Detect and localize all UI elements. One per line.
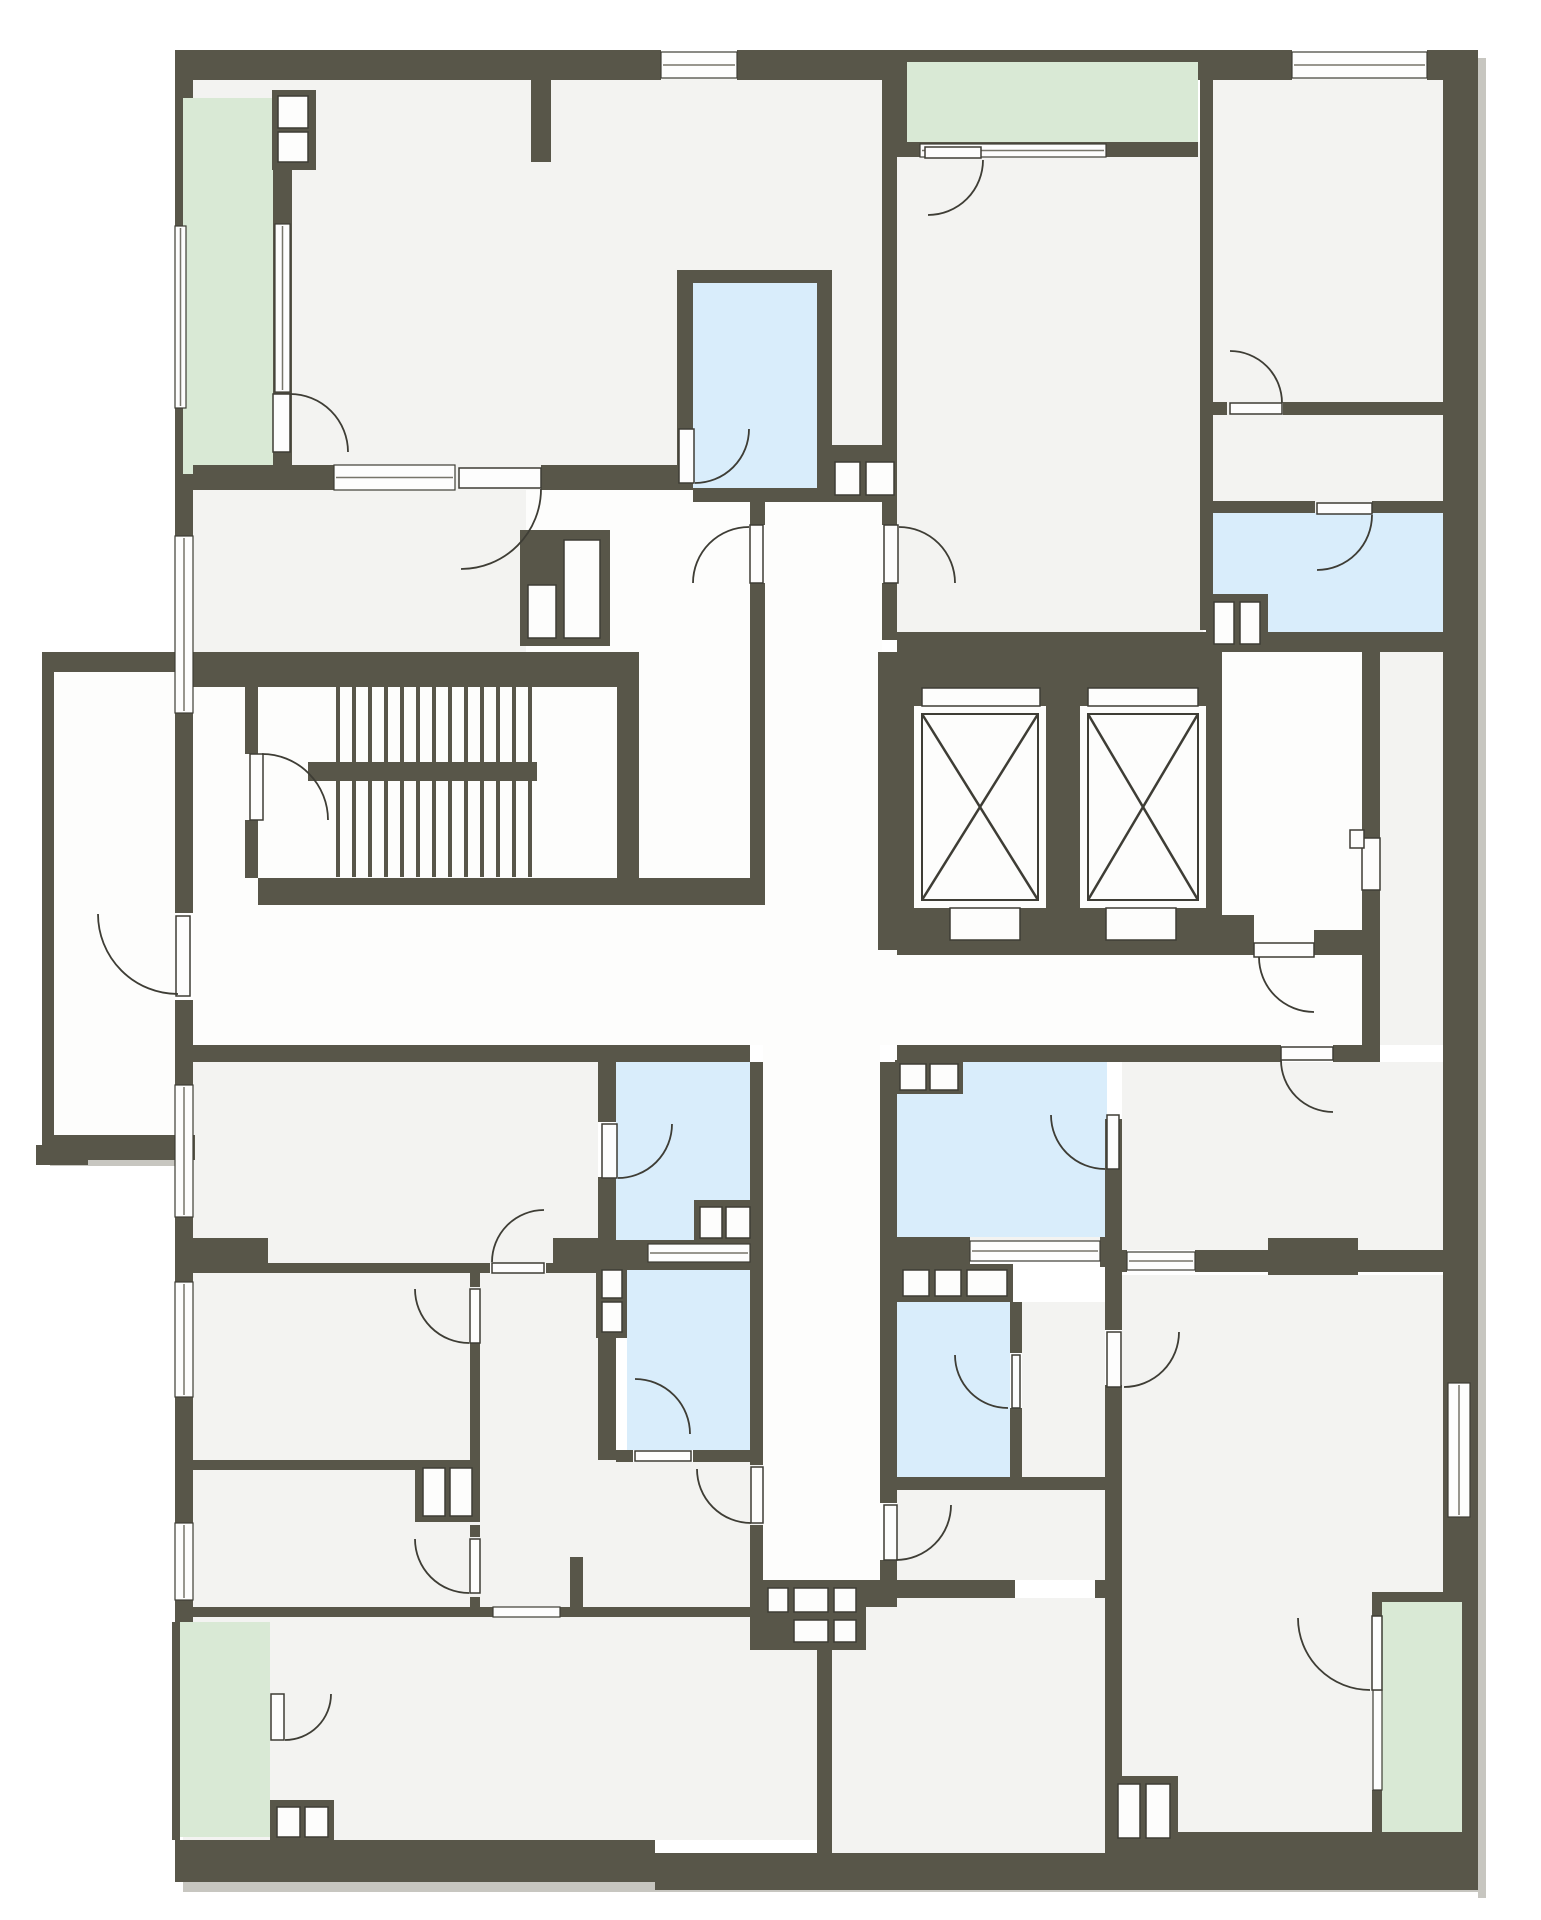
shaft-cell (768, 1588, 788, 1612)
outer-shadow (1478, 58, 1486, 1898)
door-bump-leaf (176, 916, 190, 996)
door-bath-l2-leaf (635, 1451, 691, 1461)
wall (42, 672, 54, 1140)
door-bath-l1-leaf (602, 1124, 617, 1178)
shaft-cell (835, 462, 860, 495)
elevator-door-bar (922, 688, 1040, 706)
elevator-door-notch (950, 908, 1020, 940)
wall (175, 1840, 655, 1882)
room-top-right-strip (1202, 415, 1443, 513)
balcony-bottom-right (1382, 1602, 1462, 1832)
room-top-right-corner (1213, 62, 1443, 415)
door-elevator-lobby-leaf (1254, 943, 1314, 957)
wall (546, 1263, 598, 1273)
wall (470, 1597, 480, 1607)
wall (470, 1343, 480, 1460)
door-balcony-br-leaf (1372, 1616, 1382, 1690)
corridor-vertical-bottom (763, 1045, 880, 1593)
wall (897, 632, 1443, 652)
room-mid-left-1 (193, 1062, 598, 1263)
window-balcony-br-side (1373, 1690, 1382, 1790)
door-tl-rooms-leaf (459, 468, 541, 488)
wall (1107, 1250, 1127, 1272)
shaft-cell (278, 96, 308, 128)
room-bottom-center-c (897, 1490, 1105, 1580)
wall (1213, 501, 1315, 513)
shaft-cell (423, 1468, 445, 1516)
shaft-cell (1350, 830, 1364, 848)
elevators-layer (878, 652, 1222, 950)
wall (1372, 501, 1443, 513)
wall (693, 1450, 750, 1462)
shaft-cell (935, 1270, 961, 1296)
wall (560, 1607, 763, 1617)
elevator-door-bar (1088, 688, 1198, 706)
wall (1010, 1408, 1022, 1477)
shaft-cell (528, 585, 556, 638)
door-tr-corner-leaf (1230, 403, 1282, 414)
wall (1213, 402, 1227, 415)
wall (1283, 402, 1443, 415)
wall (172, 1622, 180, 1840)
wall (897, 1045, 1281, 1062)
shaft-cell (866, 462, 894, 495)
door-balcony-tl-leaf (273, 394, 290, 452)
wall (470, 1525, 480, 1537)
shaft-cell (726, 1207, 750, 1238)
shaft-cell (277, 1807, 300, 1837)
wall (531, 80, 551, 162)
floor-plan-svg (0, 0, 1541, 1920)
wall (1010, 1302, 1022, 1353)
room-bottom-center-living (832, 1598, 1122, 1853)
shaft-cell (700, 1207, 722, 1238)
wall (737, 50, 905, 80)
wall (1462, 1602, 1478, 1840)
wall (193, 652, 639, 687)
wall (1443, 50, 1478, 1602)
wall (817, 1643, 832, 1853)
wall (541, 465, 693, 490)
shaft-cell (1146, 1784, 1170, 1838)
shaft-cell (1240, 602, 1260, 644)
door-hall-2-leaf (470, 1539, 480, 1593)
wall (36, 1145, 88, 1165)
wall (175, 1263, 490, 1273)
shaft-cell (903, 1270, 929, 1296)
door-bath-r2-leaf (1012, 1355, 1020, 1408)
floor-plan-page (0, 0, 1541, 1920)
door-hall-1-leaf (470, 1289, 480, 1343)
wall (245, 687, 258, 754)
elevator-lobby (1213, 652, 1362, 1045)
shaft-cell (564, 540, 600, 638)
wall (598, 1047, 616, 1122)
wall (897, 1580, 1015, 1598)
wall (1362, 640, 1380, 840)
door-balcony-bl-leaf (271, 1694, 284, 1740)
wall (1177, 1832, 1478, 1890)
wall (882, 583, 897, 640)
shaft-cell (834, 1588, 856, 1612)
door-br-inner-leaf (1107, 1332, 1121, 1387)
wall (1195, 1250, 1268, 1272)
wall (750, 583, 765, 905)
wall (570, 1557, 583, 1607)
wall (175, 50, 193, 98)
shaft-cell (930, 1064, 958, 1090)
wall (897, 1237, 970, 1267)
shaft-cell (1214, 602, 1234, 644)
corridor-vertical-top (765, 497, 882, 957)
shaft-cell (967, 1270, 1007, 1296)
shaft-cell (794, 1620, 828, 1642)
shaft-cell (305, 1807, 328, 1837)
door-corridor-top-right-leaf (884, 525, 898, 583)
door-corridor-top-left-leaf (750, 525, 763, 583)
wall (553, 1238, 598, 1263)
door-ml-rooms-leaf (492, 1263, 544, 1273)
wall (655, 1853, 1112, 1890)
hall-bottom-left-b (616, 1462, 763, 1607)
wall (1314, 930, 1362, 955)
wall (1200, 62, 1213, 630)
wall (258, 878, 750, 905)
room-top-right-main (897, 142, 1203, 652)
wall (470, 1273, 480, 1287)
shaft-cell (1118, 1784, 1140, 1838)
wall (1372, 1790, 1382, 1832)
opening-hall (493, 1607, 560, 1617)
shaft-cell (602, 1302, 622, 1332)
shaft-cell (278, 132, 308, 162)
shaft-cell (602, 1270, 622, 1298)
door-br-entrance-leaf (1281, 1047, 1333, 1060)
shaft-cell (450, 1468, 472, 1516)
wall (175, 50, 661, 80)
wall (880, 1560, 897, 1580)
room-bottom-right-hall (1122, 1062, 1443, 1250)
wall (750, 1062, 763, 1465)
door-balcony-tr-leaf (925, 147, 981, 158)
door-corridor-bcr-leaf (884, 1505, 897, 1560)
wall (193, 1238, 268, 1263)
wall (1362, 888, 1380, 1062)
wall (617, 687, 639, 905)
wall (193, 1045, 750, 1062)
balcony-top-right (905, 62, 1198, 142)
wall (905, 50, 1198, 62)
bump-terrace (54, 672, 175, 1135)
wall (193, 465, 334, 490)
wall (616, 1450, 633, 1462)
door-bath-top-leaf (679, 429, 694, 483)
balcony-top-left (183, 98, 273, 474)
shaft-cell (900, 1064, 926, 1090)
wall (880, 1062, 897, 1503)
room-top-left-2 (193, 490, 526, 665)
door-corridor-bl-leaf (751, 1467, 763, 1523)
wall (882, 62, 897, 497)
shaft-cell (834, 1620, 856, 1642)
shaft-cell (794, 1588, 828, 1612)
door-bath-r1-leaf (1107, 1115, 1119, 1169)
wall (1372, 1602, 1382, 1616)
elevator-door-notch (1106, 908, 1176, 940)
wall (1268, 1238, 1358, 1275)
wall (897, 1477, 1105, 1490)
wall (750, 1525, 763, 1580)
room-mid-left-2 (193, 1273, 480, 1460)
balcony-bottom-left (180, 1622, 270, 1837)
wall (1358, 1250, 1443, 1272)
bathroom-top-center (693, 283, 817, 490)
bathroom-right-lower (897, 1302, 1010, 1477)
wall (1372, 1592, 1462, 1602)
hall-bottom-left-a (480, 1273, 616, 1607)
wall (245, 820, 258, 878)
stair-rail (308, 762, 537, 781)
door-bath-tr-leaf (1317, 503, 1372, 514)
wall (42, 652, 195, 672)
door-stairs-leaf (250, 754, 263, 820)
room-right-narrow (1380, 652, 1443, 1045)
wall (175, 1607, 493, 1617)
wall (677, 270, 832, 283)
